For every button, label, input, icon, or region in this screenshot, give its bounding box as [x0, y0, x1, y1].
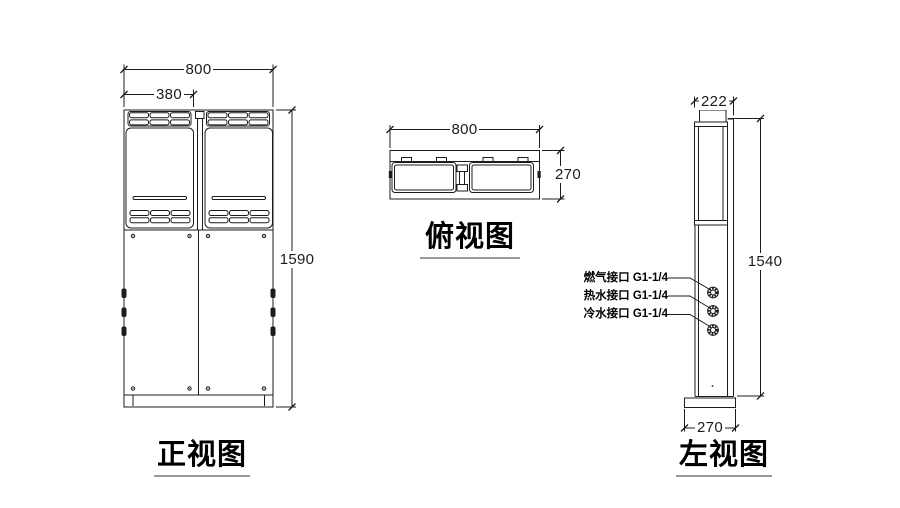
gas-connection-label: 燃气接口 G1-1/4: [548, 272, 668, 285]
front-panel-left-vents: [130, 211, 190, 223]
dim-front-overall-width: 800: [124, 62, 273, 77]
dim-left-depth: 222: [694, 94, 734, 109]
connector-leader-lines: [668, 278, 710, 327]
left-upper-unit: [695, 122, 728, 225]
front-top-vent-strip-right: [207, 112, 270, 127]
top-unit-left: [392, 163, 456, 193]
left-base-plinth: [685, 398, 736, 408]
top-unit-right: [470, 163, 534, 193]
dim-front-overall-height: 1590: [276, 252, 318, 267]
front-panel-right-vents: [209, 211, 269, 223]
left-top-cap: [700, 110, 727, 122]
front-top-vent-strip-left: [128, 112, 191, 127]
left-view-title: 左视图: [676, 441, 772, 477]
left-rear-panel: [728, 119, 734, 397]
front-view-title: 正视图: [154, 441, 250, 477]
engineering-drawing-canvas: 800 380 1590 800 270 222 1540 270 燃气接口 G…: [0, 0, 900, 508]
dim-top-depth: 270: [548, 167, 588, 182]
front-view: [121, 65, 297, 411]
front-panel-right-slot: [212, 197, 266, 200]
cold-water-connection-label: 冷水接口 G1-1/4: [548, 308, 668, 321]
dim-left-base-depth: 270: [690, 420, 730, 435]
top-view-title: 俯视图: [420, 223, 520, 259]
top-center-connector: [457, 165, 468, 191]
dim-front-panel-width: 380: [135, 87, 203, 102]
front-center-notch: [196, 112, 205, 119]
front-center-column: [198, 119, 203, 231]
front-base-plinth: [124, 395, 273, 407]
dim-top-overall-width: 800: [390, 122, 539, 137]
front-panel-left: [126, 128, 194, 228]
hot-water-connection-label: 热水接口 G1-1/4: [548, 290, 668, 303]
front-panel-left-slot: [133, 197, 187, 200]
front-panel-right: [205, 128, 273, 228]
dim-left-height: 1540: [743, 254, 787, 269]
